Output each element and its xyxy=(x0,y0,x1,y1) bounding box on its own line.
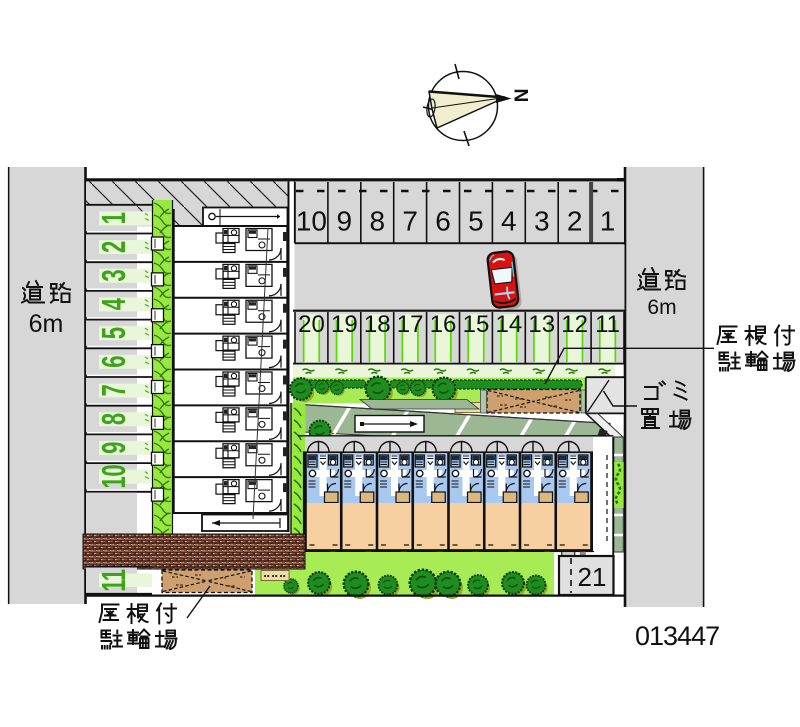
svg-text:6m: 6m xyxy=(647,296,676,319)
svg-text:10: 10 xyxy=(94,465,132,489)
svg-text:12: 12 xyxy=(561,311,588,338)
svg-text:15: 15 xyxy=(463,311,490,338)
svg-text:2: 2 xyxy=(567,206,583,237)
svg-text:19: 19 xyxy=(331,311,358,338)
svg-text:2: 2 xyxy=(94,241,132,253)
svg-text:5: 5 xyxy=(94,327,132,339)
svg-text:013447: 013447 xyxy=(635,621,719,651)
svg-text:18: 18 xyxy=(364,311,391,338)
svg-text:8: 8 xyxy=(369,206,385,237)
svg-text:6: 6 xyxy=(435,206,451,237)
svg-text:4: 4 xyxy=(501,206,517,237)
svg-text:1: 1 xyxy=(600,206,616,237)
svg-text:9: 9 xyxy=(337,206,353,237)
svg-text:9: 9 xyxy=(94,442,132,454)
svg-text:5: 5 xyxy=(468,206,484,237)
svg-text:7: 7 xyxy=(402,206,418,237)
svg-text:N: N xyxy=(510,89,531,103)
svg-text:7: 7 xyxy=(94,385,132,397)
svg-text:16: 16 xyxy=(430,311,457,338)
svg-text:17: 17 xyxy=(397,311,424,338)
svg-text:3: 3 xyxy=(94,270,132,282)
svg-text:3: 3 xyxy=(534,206,550,237)
svg-text:10: 10 xyxy=(296,206,327,237)
svg-text:20: 20 xyxy=(298,311,325,338)
svg-text:14: 14 xyxy=(495,311,522,338)
svg-text:4: 4 xyxy=(94,298,132,311)
svg-text:1: 1 xyxy=(94,212,132,224)
svg-text:13: 13 xyxy=(528,311,555,338)
svg-text:11: 11 xyxy=(94,569,132,592)
svg-text:6m: 6m xyxy=(29,310,64,338)
svg-text:6: 6 xyxy=(94,356,132,368)
svg-text:21: 21 xyxy=(578,562,607,592)
svg-text:11: 11 xyxy=(595,311,620,338)
svg-text:8: 8 xyxy=(94,413,132,425)
